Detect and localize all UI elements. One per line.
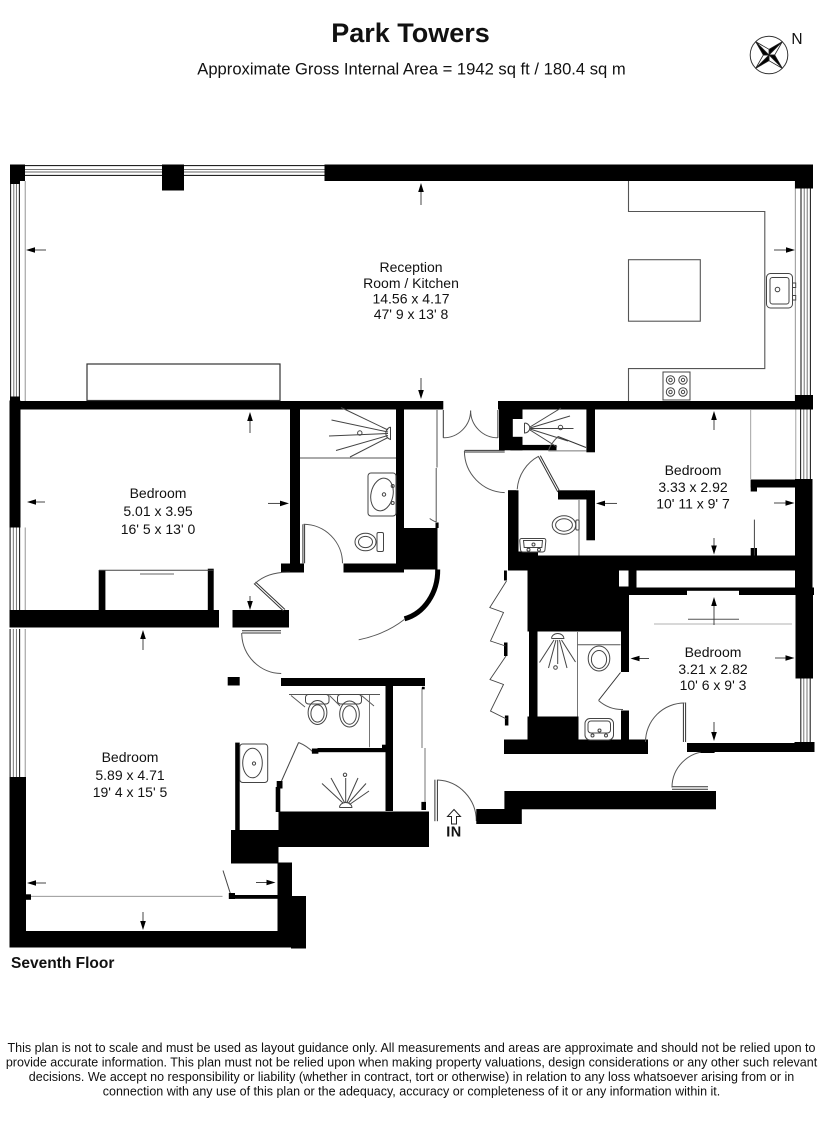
svg-text:10' 6 x 9' 3: 10' 6 x 9' 3 — [680, 677, 747, 693]
svg-text:Bedroom: Bedroom — [665, 462, 722, 478]
svg-text:decisions. We accept no respon: decisions. We accept no responsibility o… — [29, 1070, 794, 1084]
svg-text:14.56 x 4.17: 14.56 x 4.17 — [372, 291, 449, 307]
svg-text:This plan is not to scale and: This plan is not to scale and must be us… — [8, 1041, 816, 1055]
svg-text:provide accurate information.: provide accurate information. This plan … — [6, 1056, 818, 1070]
svg-text:3.33 x 2.92: 3.33 x 2.92 — [658, 479, 727, 495]
svg-text:Bedroom: Bedroom — [130, 485, 187, 501]
svg-text:Park Towers: Park Towers — [331, 18, 490, 48]
svg-text:Room / Kitchen: Room / Kitchen — [363, 275, 459, 291]
svg-text:47' 9 x 13' 8: 47' 9 x 13' 8 — [374, 306, 449, 322]
svg-text:3.21 x 2.82: 3.21 x 2.82 — [678, 661, 747, 677]
svg-text:N: N — [791, 31, 802, 48]
svg-text:IN: IN — [446, 825, 462, 841]
svg-text:5.89 x 4.71: 5.89 x 4.71 — [95, 767, 164, 783]
svg-text:connection with any use of thi: connection with any use of this plan or … — [103, 1085, 720, 1099]
svg-text:Bedroom: Bedroom — [102, 749, 159, 765]
svg-text:16' 5 x 13' 0: 16' 5 x 13' 0 — [121, 521, 196, 537]
svg-text:Reception: Reception — [379, 259, 442, 275]
svg-text:Seventh Floor: Seventh Floor — [11, 955, 114, 972]
svg-text:Bedroom: Bedroom — [685, 644, 742, 660]
svg-text:19' 4 x 15' 5: 19' 4 x 15' 5 — [93, 784, 168, 800]
svg-text:Approximate Gross Internal Are: Approximate Gross Internal Area = 1942 s… — [197, 60, 625, 79]
svg-text:5.01 x 3.95: 5.01 x 3.95 — [123, 503, 192, 519]
svg-text:10' 11 x 9' 7: 10' 11 x 9' 7 — [656, 496, 730, 512]
